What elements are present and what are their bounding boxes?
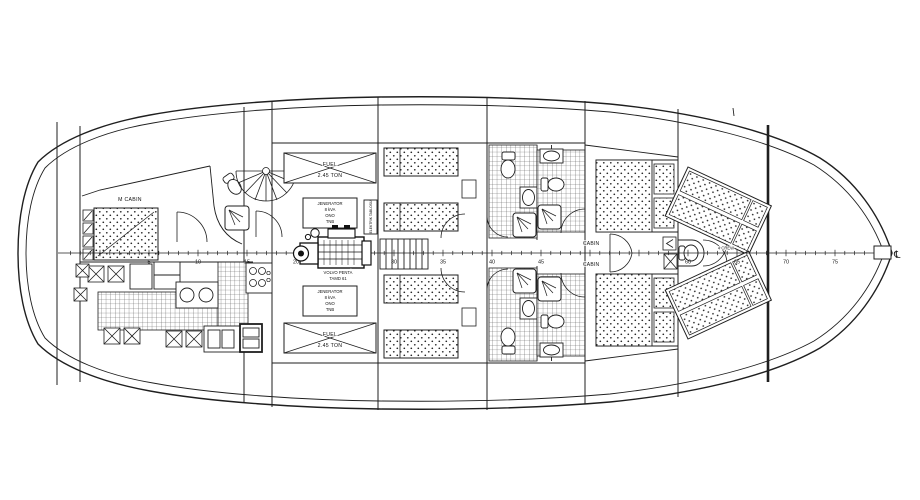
pillow — [654, 312, 674, 342]
sink-icon — [520, 187, 537, 208]
twin-bed — [384, 275, 458, 303]
fuel-tank-lower: FUEL 2.45 TON — [284, 323, 376, 353]
toilet-icon — [222, 172, 244, 197]
electric-panel: ELEKTRIK TABLOSU — [364, 200, 377, 234]
guest-cabin-lower — [384, 268, 476, 358]
twin-bed — [384, 330, 458, 358]
station-number: 60 — [685, 260, 691, 266]
shower-icon — [513, 213, 536, 237]
toilet-icon — [501, 328, 515, 354]
door-arc — [610, 253, 632, 272]
station-number: 65 — [734, 260, 740, 266]
double-bed — [596, 160, 652, 232]
galley-floor-tile — [218, 262, 248, 330]
fuel-label: FUEL — [323, 162, 337, 168]
station-number: 35 — [440, 260, 446, 266]
cabin-lower-label: CABIN — [583, 262, 599, 268]
fuel-tank-upper: FUEL 2.45 TON — [284, 153, 376, 183]
deck-plan-sheet: M CABIN — [0, 0, 920, 500]
generator-label: ONO — [325, 213, 335, 218]
generator-label: JENERATOR — [318, 289, 343, 294]
stern-head — [222, 172, 249, 230]
galley — [74, 262, 272, 352]
shower-icon — [225, 206, 249, 230]
shower-icon — [538, 205, 561, 229]
twin-bed — [384, 148, 458, 176]
toilet-icon — [541, 178, 564, 191]
bathroom-bottom-fwd — [537, 273, 585, 361]
station-number: 45 — [538, 260, 544, 266]
master-bed — [83, 208, 158, 260]
galley-sink-icon — [176, 282, 218, 308]
sink-icon — [520, 298, 537, 319]
generator-label: 8 kVA — [325, 207, 336, 212]
toilet-icon — [541, 315, 564, 328]
bow-fitting: ℄ — [874, 246, 901, 261]
generator-upper: JENERATOR 8 kVA ONO TNB — [303, 198, 357, 228]
station-number: 70 — [783, 260, 789, 266]
bathroom-bottom-aft — [487, 268, 537, 361]
engine-model-label: TAMD 61 — [329, 276, 347, 281]
station-number: 10 — [195, 260, 201, 266]
station-number: 40 — [489, 260, 495, 266]
centerline-symbol: ℄ — [893, 250, 901, 261]
station-number: 30 — [391, 260, 397, 266]
sink-icon — [540, 145, 563, 163]
boat-deck-plan: M CABIN — [0, 0, 920, 500]
reference-tick — [733, 108, 734, 116]
nightstand — [462, 308, 476, 326]
door-arc — [610, 234, 632, 253]
sink-icon — [540, 343, 563, 361]
station-number: 5 — [147, 260, 150, 266]
cabin-upper-label: CABIN — [583, 241, 599, 247]
bathroom-top-aft — [487, 145, 537, 238]
toilet-icon — [501, 152, 515, 178]
door-arc — [256, 211, 282, 237]
crew-label: 4 CREW — [718, 246, 734, 251]
fuel-capacity-label: 2.45 TON — [318, 173, 343, 179]
station-number: 15 — [244, 260, 250, 266]
generator-label: ONO — [325, 301, 335, 306]
fuel-label: FUEL — [323, 332, 337, 338]
engine-make-label: VOLVO PENTA — [324, 270, 353, 275]
pillow — [654, 164, 674, 194]
generator-label: 8 kVA — [325, 295, 336, 300]
master-cabin: M CABIN — [80, 166, 282, 262]
master-cabin-label: M CABIN — [118, 197, 142, 203]
main-engine: VOLVO PENTA TAMD 61 — [294, 225, 372, 281]
door-arc — [177, 212, 207, 242]
guest-cabin-upper — [384, 148, 476, 238]
fuel-capacity-label: 2.45 TON — [318, 343, 343, 349]
nightstand — [462, 180, 476, 198]
generator-label: JENERATOR — [318, 201, 343, 206]
double-bed — [596, 274, 652, 346]
generator-label: TNB — [326, 307, 335, 312]
electric-panel-label: ELEKTRIK TABLOSU — [369, 200, 373, 233]
pillows — [83, 210, 93, 260]
shower-icon — [538, 277, 561, 301]
twin-bed — [384, 203, 458, 231]
shower-icon — [513, 269, 536, 293]
stove-icon — [246, 263, 272, 293]
generator-label: TNB — [326, 219, 335, 224]
bathroom-top-fwd — [537, 145, 585, 233]
station-number: 75 — [832, 260, 838, 266]
generator-lower: JENERATOR 8 kVA ONO TNB — [303, 286, 357, 316]
